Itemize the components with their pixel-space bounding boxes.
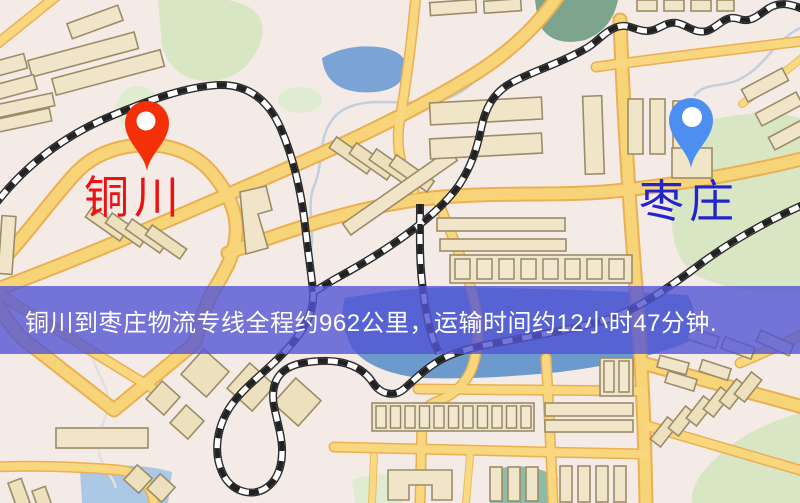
- destination-city-label: 枣庄: [639, 179, 739, 224]
- map-canvas[interactable]: [0, 0, 800, 503]
- route-info-text: 铜川到枣庄物流专线全程约962公里，运输时间约12小时47分钟.: [25, 303, 717, 338]
- logistics-route-map: 铜川 枣庄 铜川到枣庄物流专线全程约962公里，运输时间约12小时47分钟.: [0, 0, 800, 503]
- origin-pin-icon[interactable]: [119, 96, 175, 172]
- route-info-banner: 铜川到枣庄物流专线全程约962公里，运输时间约12小时47分钟.: [0, 286, 800, 354]
- destination-pin-icon[interactable]: [663, 93, 719, 169]
- origin-city-label: 铜川: [84, 175, 184, 220]
